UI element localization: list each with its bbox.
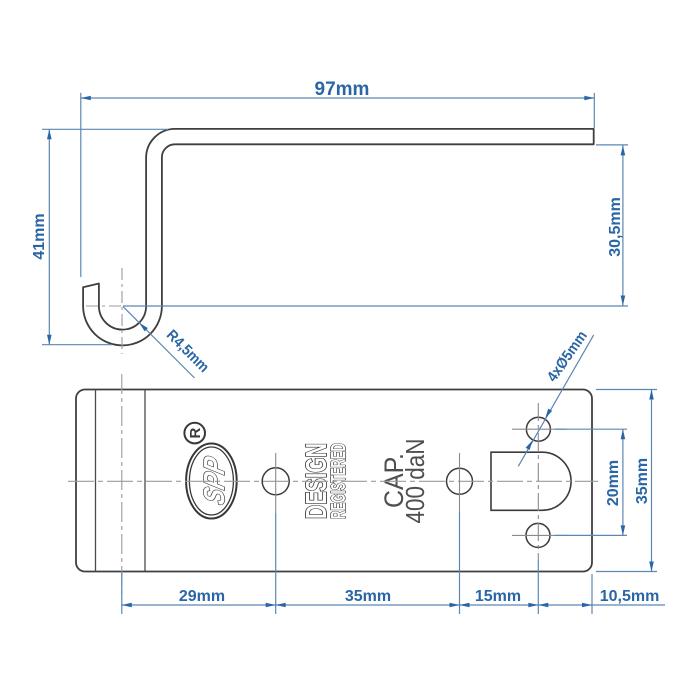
svg-text:29mm: 29mm (179, 588, 225, 605)
svg-text:35mm: 35mm (345, 588, 391, 605)
svg-text:35mm: 35mm (634, 458, 651, 504)
svg-text:41mm: 41mm (31, 213, 48, 259)
svg-text:10,5mm: 10,5mm (600, 588, 660, 605)
svg-text:30,5mm: 30,5mm (607, 197, 624, 257)
svg-text:20mm: 20mm (605, 460, 622, 506)
svg-text:R: R (187, 428, 204, 439)
svg-text:SPP: SPP (198, 453, 230, 507)
svg-text:97mm: 97mm (315, 79, 370, 100)
svg-text:15mm: 15mm (475, 588, 521, 605)
